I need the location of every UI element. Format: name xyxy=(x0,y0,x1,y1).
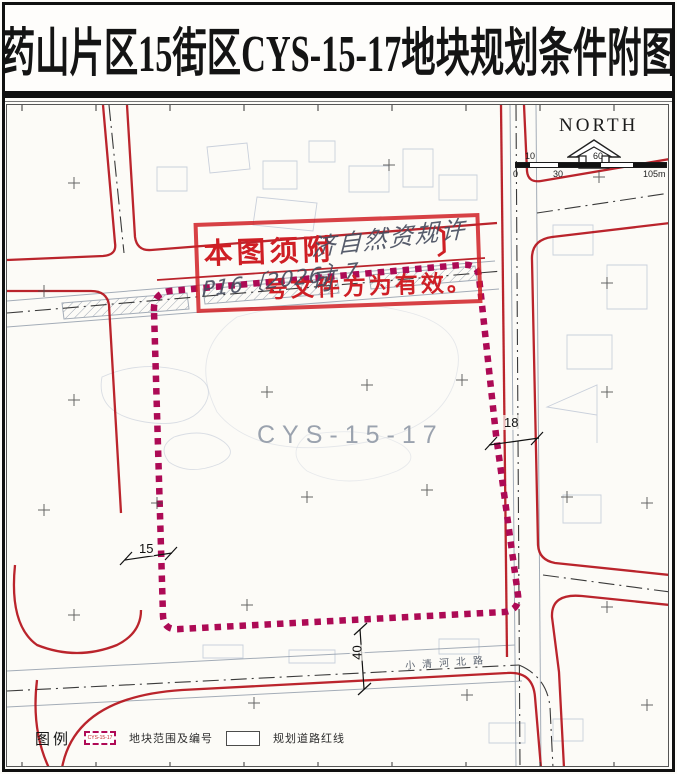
title-divider-line xyxy=(5,101,672,102)
map-canvas: NORTH 10 60 0 30 105m 本图须附 〕 号文件方为有效。 xyxy=(6,104,669,767)
title-divider-bar xyxy=(2,91,675,98)
drawing-title: 药山片区15街区CYS-15-17地块规划条件附图 xyxy=(1,11,676,86)
scale-bar: 10 60 0 30 105m xyxy=(513,151,669,177)
road-width-dimension: 15 xyxy=(138,541,154,556)
legend: 图例 CYS-15-17 地块范围及编号 规划道路红线 xyxy=(35,727,345,749)
legend-title: 图例 xyxy=(35,728,71,749)
road-width-dimension: 40 xyxy=(350,644,365,660)
scale-tick-label: 10 xyxy=(525,151,535,161)
road-redline-legend-icon xyxy=(226,731,260,746)
scale-tick-label: 105m xyxy=(643,169,666,179)
title-block: 药山片区15街区CYS-15-17地块规划条件附图 xyxy=(5,5,672,91)
scale-tick-label: 0 xyxy=(513,169,518,179)
legend-item-label: 规划道路红线 xyxy=(273,730,345,746)
scale-tick-label: 60 xyxy=(593,151,603,161)
plot-number-label: CYS-15-17 xyxy=(257,421,444,450)
scale-bar-segments xyxy=(515,162,667,168)
north-label: NORTH xyxy=(559,115,638,137)
scale-tick-label: 30 xyxy=(553,169,563,179)
road-width-dimension: 18 xyxy=(503,415,519,430)
plot-boundary-legend-icon: CYS-15-17 xyxy=(84,731,116,745)
approval-stamp: 本图须附 〕 号文件方为有效。 济自然资规许可 P16〔2026〕7 xyxy=(194,213,483,313)
legend-item-label: 地块范围及编号 xyxy=(129,730,213,746)
legend-symbol-text: CYS-15-17 xyxy=(88,735,113,741)
drawing-sheet: 药山片区15街区CYS-15-17地块规划条件附图 xyxy=(0,0,677,774)
